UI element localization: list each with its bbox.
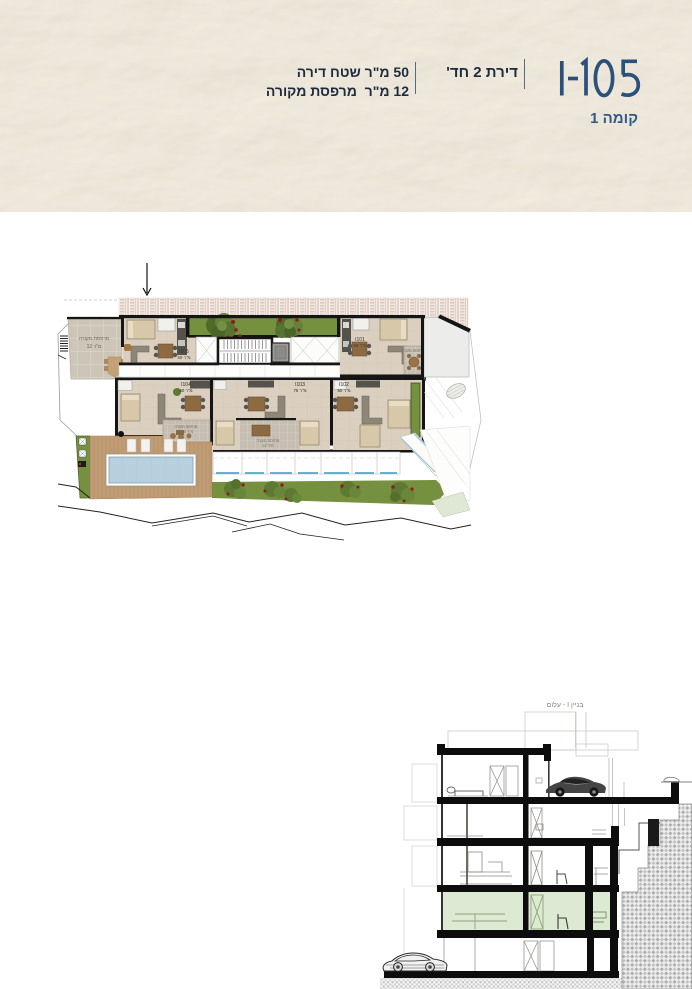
svg-text:12 מ"ר: 12 מ"ר — [87, 344, 102, 350]
svg-text:מ"ר 50: מ"ר 50 — [337, 388, 350, 393]
svg-text:מ"ר 50: מ"ר 50 — [179, 388, 192, 393]
svg-text:מרפסת מקורה: מרפסת מקורה — [79, 336, 110, 342]
svg-text:בניין I - עלום: בניין I - עלום — [547, 701, 584, 709]
svg-text:מרפסת מקורה: מרפסת מקורה — [256, 439, 279, 443]
svg-text:מרפסת מקורה: מרפסת מקורה — [174, 425, 197, 429]
svg-text:מ"ר 50: מ"ר 50 — [177, 355, 190, 360]
svg-text:מ"ר 75: מ"ר 75 — [293, 388, 306, 393]
svg-text:מ"ר 50: מ"ר 50 — [353, 343, 366, 348]
svg-text:22 מ"ר: 22 מ"ר — [262, 444, 274, 448]
